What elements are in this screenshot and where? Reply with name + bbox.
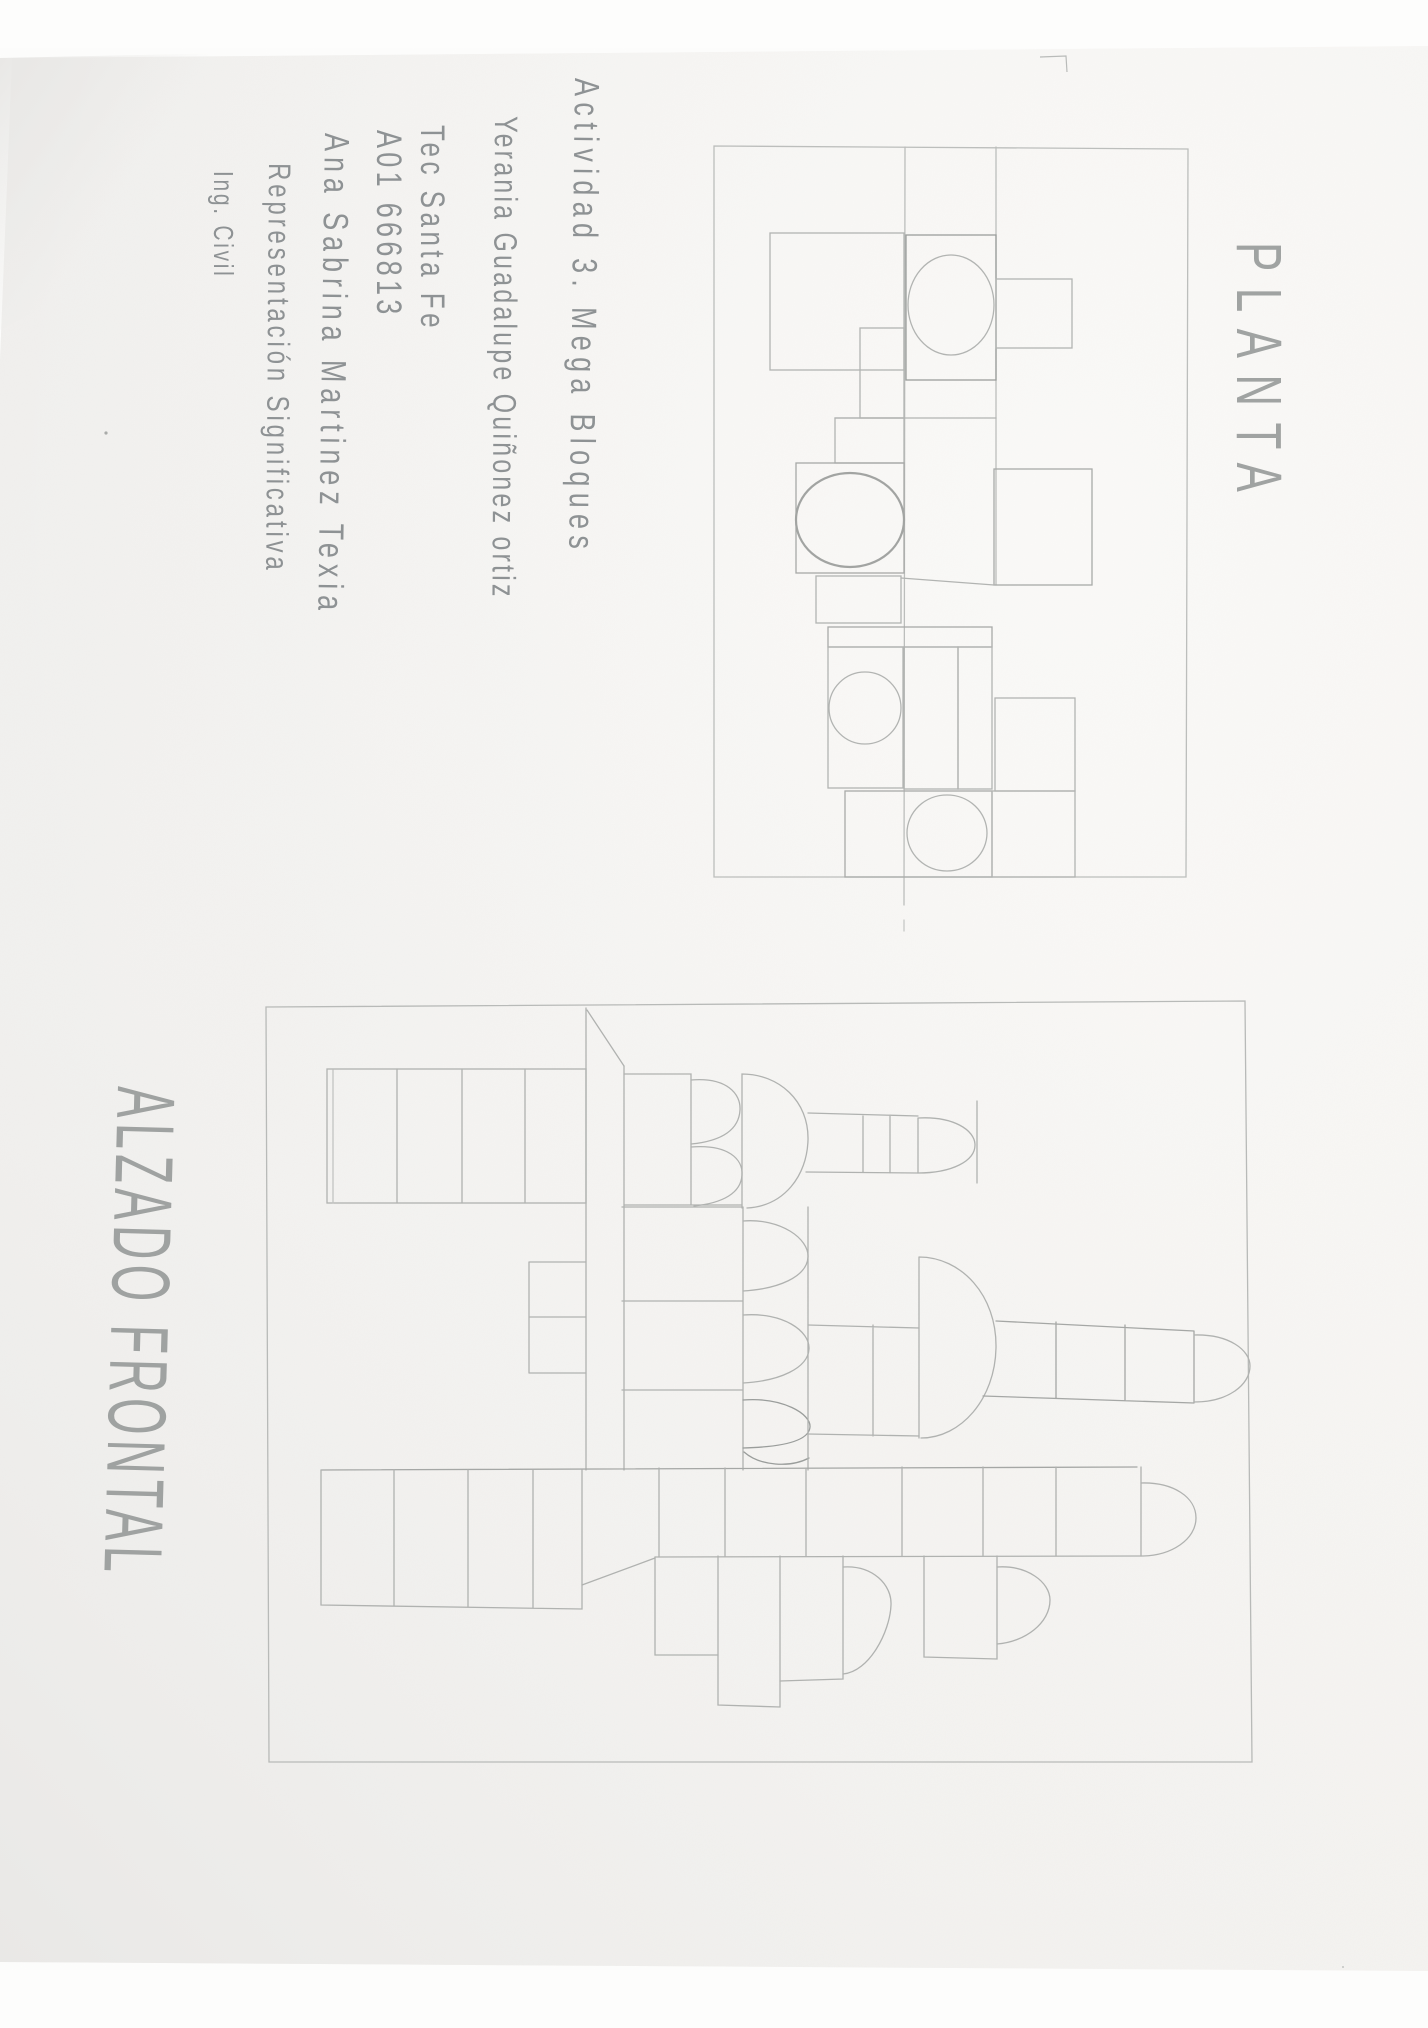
svg-text:Yerania Guadalupe Quiñonez ort: Yerania Guadalupe Quiñonez ortiz [485,116,523,600]
svg-text:A01 666813: A01 666813 [369,130,408,319]
svg-text:Ing. Civil: Ing. Civil [207,171,237,278]
svg-text:Tec Santa Fe: Tec Santa Fe [413,125,450,332]
svg-text:Ana Sabrina Martinez Texia: Ana Sabrina Martinez Texia [310,133,356,616]
svg-text:Actividad 3. Mega Bloques: Actividad 3. Mega Bloques [561,78,606,555]
svg-text:ALZADO FRONTAL: ALZADO FRONTAL [86,1085,192,1578]
svg-text:Representación Significativa: Representación Significativa [259,163,297,574]
svg-text:PLANTA: PLANTA [1223,242,1295,508]
